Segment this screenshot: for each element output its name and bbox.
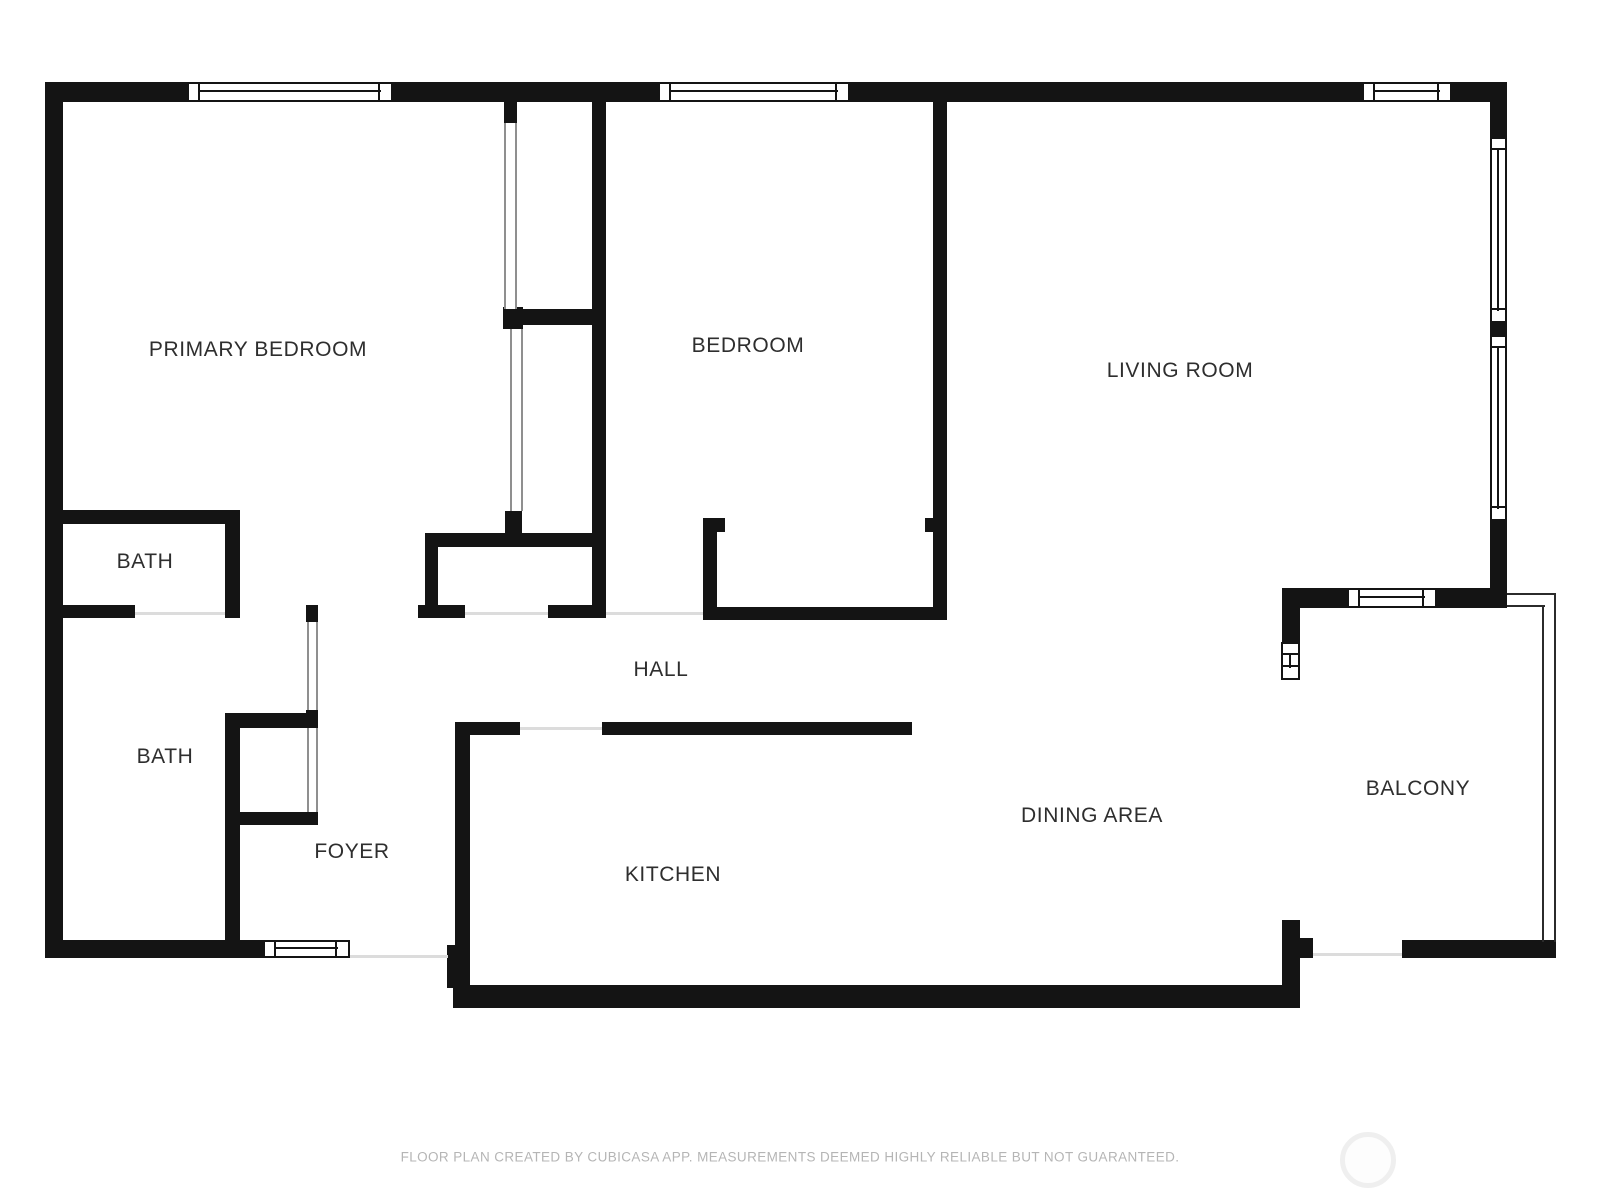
- wall-segment: [453, 985, 1297, 1008]
- wall-segment: [717, 518, 725, 532]
- wall-segment: [418, 605, 465, 618]
- window-icon: [1362, 82, 1452, 102]
- wall-segment: [225, 713, 240, 958]
- footer-disclaimer: FLOOR PLAN CREATED BY CUBICASA APP. MEAS…: [401, 1150, 1180, 1165]
- window-icon: [1281, 642, 1300, 680]
- window-icon: [1490, 335, 1507, 521]
- window-icon: [263, 940, 350, 958]
- wall-segment: [425, 533, 438, 605]
- wall-segment: [1490, 82, 1507, 137]
- wall-segment: [703, 518, 717, 618]
- wall-segment: [602, 722, 912, 735]
- floor-plan: PRIMARY BEDROOM BEDROOM LIVING ROOM BATH…: [0, 0, 1600, 1200]
- watermark-circle: [1340, 1132, 1396, 1188]
- door-opening: [465, 612, 548, 615]
- wall-segment: [1282, 588, 1300, 642]
- wall-segment: [548, 605, 597, 618]
- room-label-dining-area: DINING AREA: [1021, 804, 1163, 828]
- wall-segment: [1300, 938, 1313, 958]
- sliding-door-icon: [510, 329, 523, 511]
- room-label-balcony: BALCONY: [1366, 777, 1471, 801]
- balcony-railing: [1542, 605, 1544, 942]
- balcony-railing: [1507, 605, 1545, 607]
- window-icon: [1347, 588, 1437, 608]
- room-label-bath-lower: BATH: [137, 745, 194, 769]
- sliding-door-icon: [307, 622, 318, 710]
- wall-segment: [455, 722, 470, 988]
- room-label-primary-bedroom: PRIMARY BEDROOM: [149, 338, 367, 362]
- door-opening: [350, 955, 448, 958]
- room-label-bedroom: BEDROOM: [692, 334, 805, 358]
- room-label-living-room: LIVING ROOM: [1107, 359, 1254, 383]
- window-icon: [658, 82, 850, 102]
- balcony-railing: [1554, 593, 1556, 942]
- wall-segment: [503, 307, 523, 329]
- wall-segment: [703, 607, 947, 620]
- room-label-hall: HALL: [634, 658, 689, 682]
- door-opening: [520, 727, 602, 730]
- wall-segment: [1402, 940, 1556, 958]
- wall-segment: [504, 102, 517, 125]
- wall-segment: [425, 533, 597, 547]
- door-opening: [135, 612, 225, 615]
- wall-segment: [45, 605, 135, 618]
- window-icon: [187, 82, 393, 102]
- wall-segment: [455, 722, 520, 735]
- door-opening: [1313, 953, 1402, 956]
- sliding-door-icon: [504, 123, 517, 309]
- wall-segment: [228, 812, 318, 825]
- wall-segment: [306, 605, 318, 622]
- room-label-foyer: FOYER: [314, 840, 389, 864]
- wall-segment: [225, 510, 240, 618]
- sliding-door-icon: [307, 728, 318, 812]
- wall-segment: [45, 510, 240, 524]
- room-label-bath-upper: BATH: [117, 550, 174, 574]
- wall-segment: [933, 82, 947, 618]
- wall-segment: [505, 511, 522, 533]
- door-opening: [606, 612, 703, 615]
- window-icon: [1490, 137, 1507, 323]
- room-label-kitchen: KITCHEN: [625, 863, 721, 887]
- wall-segment: [1490, 323, 1507, 335]
- wall-segment: [1437, 588, 1507, 608]
- balcony-railing: [1507, 593, 1556, 595]
- wall-segment: [1282, 920, 1300, 1008]
